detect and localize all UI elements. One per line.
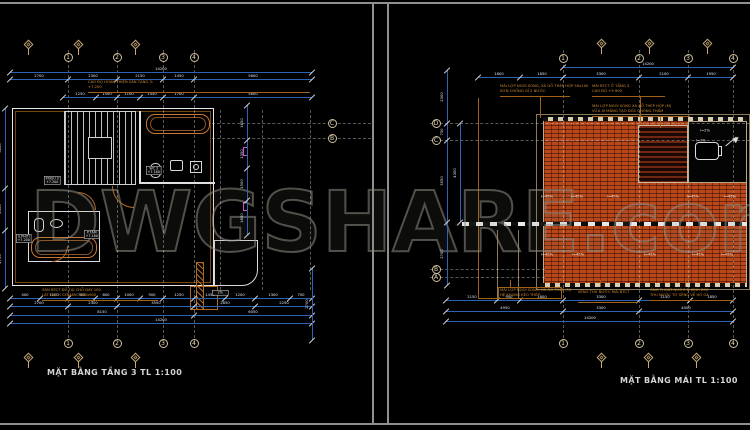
grid-bubble: 3 <box>684 339 693 348</box>
slope-label: i=45% <box>541 194 553 198</box>
dimension-number: 3800 <box>0 143 2 152</box>
dimension-number: 14200 <box>584 316 596 320</box>
dimension-number: 1650 <box>240 213 244 222</box>
dimension-line <box>312 268 313 340</box>
level-diamond-stem <box>135 361 136 368</box>
slope-label: i=45% <box>692 252 704 256</box>
dimension-number: 1250 <box>174 293 183 297</box>
grid-bubble: C <box>432 136 441 145</box>
grid-bubble: 3 <box>684 54 693 63</box>
grid-bubble: C <box>328 119 337 128</box>
dimension-number: 1250 <box>75 92 84 96</box>
annotation-underline <box>592 116 690 117</box>
dimension-number: 6050 <box>248 310 257 314</box>
level-diamond-stem <box>648 361 649 368</box>
annotation-underline <box>578 302 638 303</box>
level-diamond-stem <box>601 361 602 368</box>
dimension-number: 2300 <box>440 92 444 101</box>
level-diamond-stem <box>649 47 650 54</box>
left-sheet-title: MẶT BẰNG TẦNG 3 TL 1:100 <box>47 368 182 377</box>
annotation-note: MÁI LỢP NGÓI SÓNG XÀ GỒ THÉP HỘP (M) VỮA… <box>592 104 671 113</box>
grid-line-vertical <box>563 50 564 348</box>
dimension-number: 14200 <box>155 67 167 71</box>
dimension-number: 14200 <box>155 318 167 322</box>
grid-bubble: 4 <box>190 53 199 62</box>
annotation-underline <box>650 300 734 301</box>
dimension-number: 1800 <box>494 72 503 76</box>
cad-canvas: MẶT BẰNG TẦNG 3 TL 1:100 MẶT BẰNG MÁI TL… <box>0 0 750 430</box>
dimension-number: 2250 <box>279 301 288 305</box>
dimension-number: 2150 <box>135 74 144 78</box>
leader-line <box>540 96 541 118</box>
washbasin-upper <box>170 160 183 171</box>
dimension-line <box>446 321 733 322</box>
dimension-line <box>460 123 461 222</box>
grid-bubble: 2 <box>635 339 644 348</box>
grid-line-vertical <box>310 110 311 290</box>
watermark: DWGSHARE.com <box>30 180 750 264</box>
roof-top-edge-dashed <box>543 117 747 121</box>
slope-label: i=45% <box>572 252 584 256</box>
annotation-note: SÀN BTCT ĐỔ TẠI CHỖ DÀY 100 LÁT GẠCH CER… <box>42 288 101 297</box>
grid-bubble: 4 <box>190 339 199 348</box>
dimension-number: 1650 <box>240 118 244 127</box>
grid-bubble: 3 <box>159 339 168 348</box>
sheet-border-bottom <box>0 423 750 425</box>
level-diamond-stem <box>28 361 29 368</box>
dimension-number: 2000 <box>0 204 2 213</box>
dimension-number: 4950 <box>500 306 509 310</box>
dimension-tick <box>309 76 315 82</box>
dimension-number: 1450 <box>174 74 183 78</box>
dimension-number: 3550 <box>440 176 444 185</box>
roof-bottom-edge-dashed <box>540 283 747 287</box>
grid-line-horizontal <box>430 123 750 124</box>
dimension-number: 3550 <box>151 301 160 305</box>
dimension-number: 900 <box>148 293 155 297</box>
annotation-note: ỐNG THOÁT NƯỚC Đ.KÍNH D90 THU NƯỚC TỪ SÊ… <box>650 288 709 297</box>
tank-label: i=2% <box>696 138 706 142</box>
dimension-number: 4000 <box>681 306 690 310</box>
dimension-number: 1000 <box>124 293 133 297</box>
annotation-box <box>498 287 562 299</box>
dimension-line <box>63 97 312 98</box>
grid-bubble: 3 <box>159 53 168 62</box>
grid-bubble: 2 <box>113 339 122 348</box>
dimension-line <box>10 306 312 307</box>
dimension-number: 4300 <box>453 168 457 177</box>
annotation-note: MÁI BTCT Ở TẦNG 3 CAO ĐỘ +9.900 <box>592 84 629 93</box>
right-sheet-title: MẶT BẰNG MÁI TL 1:100 <box>620 376 738 385</box>
dimension-line <box>563 67 733 68</box>
dimension-number: 2100 <box>659 72 668 76</box>
dimension-number: 2700 <box>305 299 309 308</box>
leader-line <box>685 280 686 287</box>
grid-line-vertical <box>733 50 734 348</box>
slope-label: i=45% <box>571 194 583 198</box>
dimension-number: 750 <box>440 128 444 135</box>
level-diamond-stem <box>696 361 697 368</box>
dimension-line <box>10 315 312 316</box>
room-tag: P.NGỦ 3 +7.200 <box>44 176 60 185</box>
dimension-tick <box>309 337 315 343</box>
annotation-underline <box>42 300 158 301</box>
grid-bubble: 1 <box>64 53 73 62</box>
grid-bubble: 1 <box>559 339 568 348</box>
dimension-line <box>478 77 733 78</box>
dimension-line <box>10 323 312 324</box>
grid-line-vertical <box>220 110 221 290</box>
stair-landing <box>88 137 112 159</box>
annotation-underline <box>88 92 160 93</box>
grid-bubble: 4 <box>729 54 738 63</box>
dimension-number: 1200 <box>235 293 244 297</box>
level-diamond-stem <box>78 361 79 368</box>
dimension-number: 2700 <box>34 74 43 78</box>
annotation-note: MÁI LỢP NGÓI SÓNG, XÀ GỒ THÉP HỘP 50x100… <box>500 84 588 93</box>
dimension-number: 5600 <box>248 74 257 78</box>
room-tag: S.PHƠI +7.200 <box>16 234 32 243</box>
dimension-line <box>247 105 248 235</box>
dimension-line <box>10 72 312 73</box>
dimension-number: 2300 <box>88 74 97 78</box>
slope-label: i=45% <box>721 252 733 256</box>
dimension-number: 1950 <box>706 72 715 76</box>
grid-bubble: A <box>432 273 441 282</box>
dimension-number: 2700 <box>440 249 444 258</box>
grid-line-horizontal <box>212 138 371 139</box>
dimension-number: 2300 <box>88 301 97 305</box>
room-tag: P.TẮM +7.180 <box>84 230 100 239</box>
water-tank-cap <box>719 146 722 156</box>
bathtub-upper-inner <box>150 117 206 131</box>
annotation-underline <box>500 96 570 97</box>
dimension-line <box>5 108 6 288</box>
dimension-number: 8150 <box>97 310 106 314</box>
dimension-tick <box>309 69 315 75</box>
annotation-note: SÊNÔ THU NƯỚC MÁI BTCT <box>578 290 629 295</box>
leader-line <box>160 92 310 93</box>
level-diamond-stem <box>135 48 136 55</box>
dimension-number: 700 <box>297 293 304 297</box>
dimension-number: 1300 <box>268 293 277 297</box>
dimension-number: 800 <box>102 293 109 297</box>
tank-label: i=2% <box>700 128 710 132</box>
dimension-number: 400 <box>21 293 28 297</box>
grid-bubble: B <box>328 134 337 143</box>
dimension-line <box>447 70 448 285</box>
dimension-number: 2150 <box>467 295 476 299</box>
leader-line <box>600 280 601 287</box>
grid-line-horizontal <box>212 123 371 124</box>
annotation-note: CAO ĐỘ HOÀN THIỆN SÀN TẦNG 3: +7.200 <box>88 80 153 89</box>
sheet-border-top <box>0 2 750 4</box>
grid-bubble: 1 <box>559 54 568 63</box>
grid-bubble: D <box>432 119 441 128</box>
leader-line <box>510 280 511 287</box>
grid-line-vertical <box>262 110 263 290</box>
detail-tag: 2% <box>212 290 229 296</box>
slope-label: i=45% <box>607 194 619 198</box>
level-diamond-stem <box>707 47 708 54</box>
dimension-number: 2850 <box>220 301 229 305</box>
grid-bubble: 2 <box>113 53 122 62</box>
dimension-number: 1500 <box>240 179 244 188</box>
leader-line <box>660 116 661 128</box>
slope-label: i=45% <box>724 194 736 198</box>
dimension-number: 3300 <box>596 295 605 299</box>
level-diamond-stem <box>601 47 602 54</box>
water-tank-icon <box>695 142 719 160</box>
grid-line-vertical <box>688 50 689 348</box>
dimension-tick <box>2 285 8 291</box>
dimension-number: 3300 <box>596 306 605 310</box>
slope-label: i=45% <box>687 194 699 198</box>
grid-bubble: 1 <box>64 339 73 348</box>
dimension-number: 1350 <box>240 149 244 158</box>
dimension-number: 2700 <box>34 301 43 305</box>
dimension-number: 2750 <box>0 254 2 263</box>
dimension-line <box>446 311 733 312</box>
annotation-underline <box>592 96 665 97</box>
dimension-tick <box>309 94 315 100</box>
grid-bubble: 4 <box>729 339 738 348</box>
level-diamond-stem <box>78 48 79 55</box>
room-tag: WC 3 +7.180 <box>146 166 162 175</box>
dimension-number: 3300 <box>596 72 605 76</box>
slope-label: i=45% <box>541 252 553 256</box>
dimension-tick <box>444 282 450 288</box>
dimension-number: 1850 <box>537 72 546 76</box>
dimension-number: 14200 <box>642 62 654 66</box>
slope-label: i=45% <box>644 252 656 256</box>
grid-line-vertical <box>639 50 640 348</box>
level-diamond-stem <box>28 48 29 55</box>
